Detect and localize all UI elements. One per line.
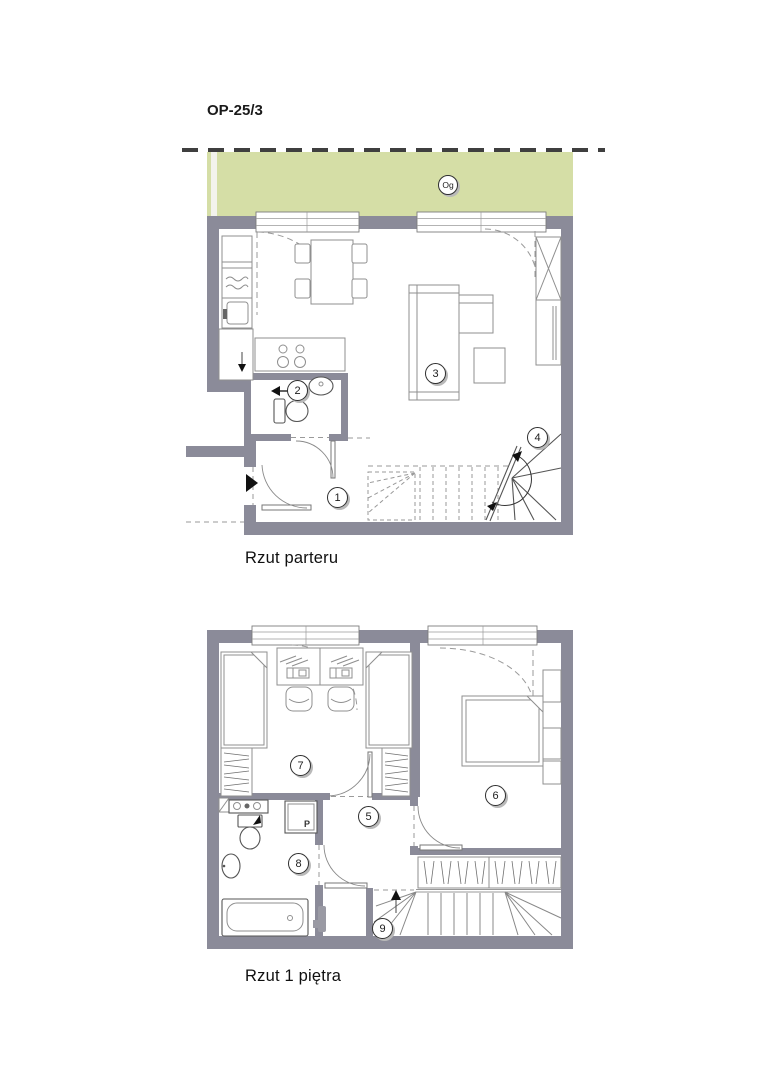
room-label-4: 4 [527,427,548,448]
room-label-6: 6 [485,785,506,806]
room-label-1: 1 [327,487,348,508]
bedroom-7 [221,648,412,797]
living-door-swing [485,229,537,281]
kitchen-window [256,212,359,232]
dining-table [311,240,353,304]
fridge [222,236,252,268]
toilet-tank [274,399,285,423]
vent-arrow [271,386,280,396]
wc-door-swing [296,441,333,478]
washing-machine [222,268,252,298]
double-bed [462,696,543,766]
bedroom7-window [252,626,359,645]
entry-door-swing [262,465,307,508]
faucet [223,309,227,319]
coffee-table [474,348,505,383]
sofa-chaise [459,295,493,333]
chair [352,244,367,263]
shower-tray [285,801,317,833]
bed [221,652,267,748]
chair [295,244,310,263]
entry [246,465,311,510]
room6-door-swing [418,806,460,848]
nightstand [543,728,561,759]
kitchen-counter [219,329,253,380]
entry-marker [246,474,258,492]
bedroom6-window [428,626,537,645]
nightstand [543,670,561,702]
room-label-9: 9 [372,918,393,939]
neighbor-wall-stub [186,446,248,457]
first-floor-caption: Rzut 1 piętra [245,967,341,986]
bedroom-6 [414,670,561,888]
chair [352,279,367,298]
garden-area [207,152,573,216]
floor-plan-sheet: OP-25/3 [0,0,777,1080]
garden-label: Og [438,175,458,195]
toilet-bowl [240,827,260,849]
chair [295,279,310,298]
dining-set [295,240,367,304]
room-label-7: 7 [290,755,311,776]
floor-plan-drawing [0,0,777,1080]
room-label-3: 3 [425,363,446,384]
room7-door-swing [329,754,370,796]
room-label-8: 8 [288,853,309,874]
shower-label: P [304,819,310,829]
ground-floor-caption: Rzut parteru [245,549,338,568]
room-label-2: 2 [287,380,308,401]
chair [286,687,312,711]
toilet-bowl [286,401,308,422]
up-arrow [391,890,401,900]
ground-floor-plan [182,150,605,535]
cooktop-counter [255,338,345,371]
cabinet [536,300,561,365]
first-stairs [374,890,561,936]
bathroom-door-swing [324,845,365,886]
chair [328,687,354,711]
first-floor-plan [207,626,573,949]
bed [366,652,412,748]
radiator [318,906,326,932]
living-window [417,212,546,232]
ground-stairs [348,434,561,521]
nightstand [543,761,561,784]
drain [245,804,250,809]
room-label-5: 5 [358,806,379,827]
